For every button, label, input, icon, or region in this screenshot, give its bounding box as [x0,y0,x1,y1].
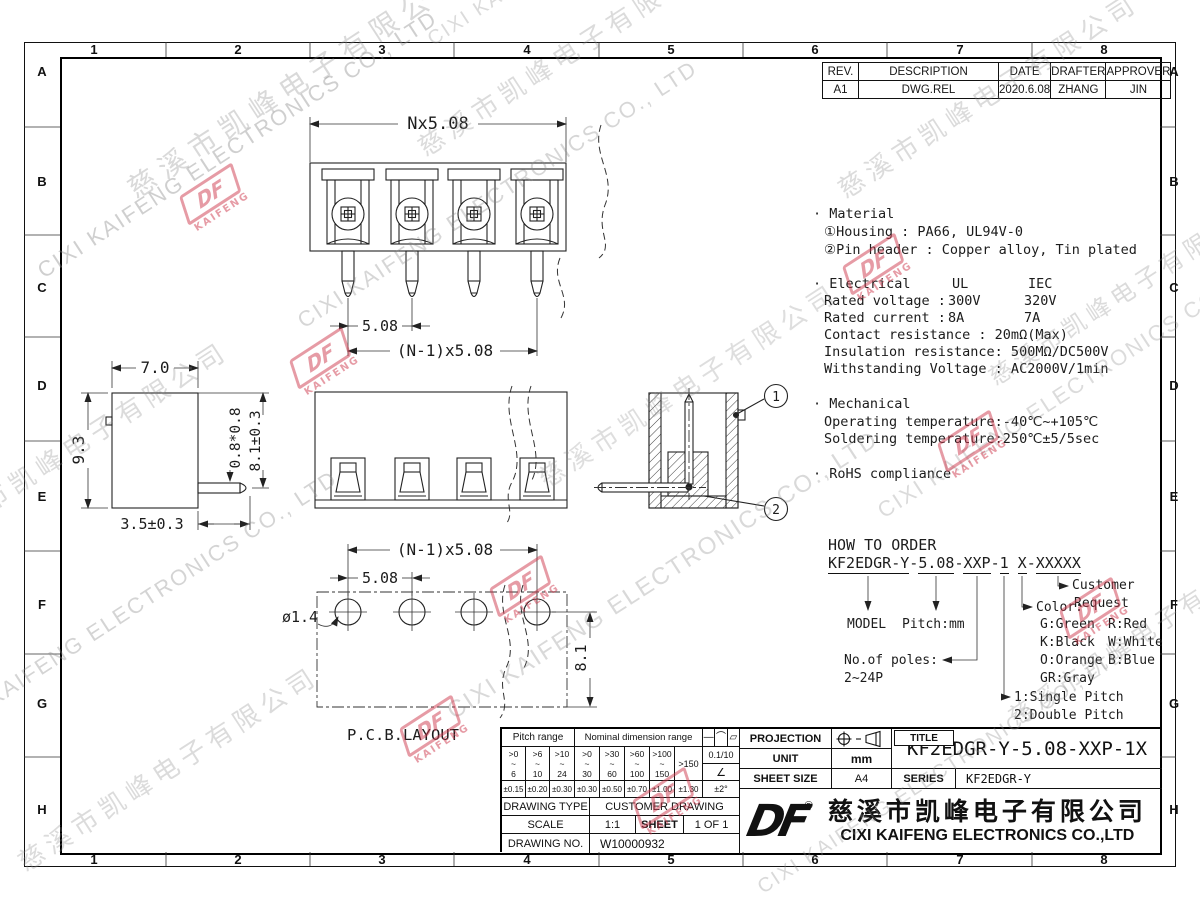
company-names: 慈溪市凯峰电子有限公司 CIXI KAIFENG ELECTRONICS CO.… [813,798,1162,846]
dim-width: 7.0 [141,358,170,377]
callout-1: 1 [772,390,780,405]
order-custom-code: XXXXX [1036,554,1081,574]
rev-value: JIN [1106,81,1171,99]
order-sep: - [909,554,918,572]
rated-current-ul: 8A [948,310,964,326]
tol-value: ±1.00 [650,781,675,798]
series-label: SERIES [892,769,956,789]
operating-temperature: Operating temperature:-40℃~+105℃ [824,414,1098,430]
dim-hole-dia: ø1.4 [282,608,318,626]
flatness-symbol: ▱ [727,729,739,746]
arc-symbol: ⌒ [714,729,726,746]
tol-range: >0~30 [575,747,600,781]
company-name-zh: 慈溪市凯峰电子有限公司 [813,798,1162,826]
order-color-option: B:Blue [1108,653,1155,668]
rev-header: APPROVER [1106,63,1171,81]
order-request-label: Request [1074,596,1129,611]
dim-pin-len: 8.1±0.3 [248,410,264,471]
electrical-col-ul: UL [952,276,968,292]
order-sep: - [991,554,1000,572]
top-view-dims [310,117,566,356]
material-line: ①Housing : PA66, UL94V-0 [824,224,1023,240]
sheet-size-value: A4 [832,769,892,789]
order-code: KF2EDGR-Y-5.08-XXP-1 X-XXXXX [828,554,1081,572]
company-name-en: CIXI KAIFENG ELECTRONICS CO.,LTD [813,826,1162,846]
front-view-break-line [506,386,536,524]
order-pitch-label: Pitch:mm [902,617,965,632]
sheet-size-label: SHEET SIZE [740,769,832,789]
pcb-break-line [500,585,528,718]
scale-value: 1:1 [590,816,636,834]
dim-row-dist: 8.1 [572,644,590,671]
order-color-option: GR:Gray [1040,671,1095,686]
tol-value: ±0.30 [575,781,600,798]
tol-value: ±0.70 [625,781,650,798]
tol-symbols: —⌒▱ [703,729,740,747]
order-color-code: X [1018,554,1027,574]
tol-range: >6~10 [526,747,550,781]
tol-range: >0~6 [502,747,526,781]
tol-value: ±0.15 [502,781,526,798]
df-logo: DF [743,800,809,844]
title-block: Pitch range Nominal dimension range —⌒▱ … [500,727,1160,852]
rated-voltage-label: Rated voltage : [824,293,946,309]
callout-2: 2 [772,503,780,518]
tol-nominal-header: Nominal dimension range [575,729,703,747]
rev-value: 2020.6.08 [999,81,1051,99]
pcb-dims [318,544,597,707]
rated-current-label: Rated current : [824,310,946,326]
drawing-no-value: W10000932 [590,834,740,854]
material-title: · Material [813,206,894,222]
series-value: KF2EDGR-Y [956,769,1162,789]
order-connectors [868,576,1068,697]
rev-value: DWG.REL [859,81,999,99]
side-view [106,393,246,508]
unit-label: UNIT [740,749,832,769]
drawing-type-value: CUSTOMER DRAWING [590,798,740,816]
projection-label: PROJECTION [740,729,832,749]
tol-range-over: >150 [675,747,703,781]
order-sep: - [1027,554,1036,572]
line-symbol: — [703,729,714,746]
order-poles-range: 2~24P [844,671,883,686]
drawing-type-label: DRAWING TYPE [502,798,590,816]
dim-pin-offset: 3.5±0.3 [120,515,183,533]
dim-pitch-n1: (N-1)x5.08 [397,341,493,360]
tol-range: >10~24 [550,747,575,781]
section-view [598,385,788,521]
sheet-label: SHEET [636,816,684,834]
revision-table: REV. DESCRIPTION DATE DRAFTER APPROVER A… [822,62,1171,99]
order-color-option: G:Green [1040,617,1095,632]
withstanding-voltage: Withstanding Voltage : AC2000V/1min [824,361,1108,377]
order-model-code: KF2EDGR-Y [828,554,909,574]
dim-pin-square: 0.8*0.8 [228,407,244,468]
drawing-no-label: DRAWING NO. [502,834,590,854]
tol-angle-value: ±2° [703,781,740,798]
tol-value: ±0.20 [526,781,550,798]
top-view [310,163,566,297]
order-pitch-code: 5.08 [918,554,954,574]
order-type-single: 1:Single Pitch [1014,690,1124,705]
tol-pitch-header: Pitch range [502,729,575,747]
rated-voltage-ul: 300V [948,293,981,309]
dim-height: 9.3 [69,436,88,465]
tol-value: ±1.30 [675,781,703,798]
order-type-code: 1 [1000,554,1009,574]
top-view-break-line [557,125,608,318]
projection-symbol [832,729,892,749]
rev-value: A1 [823,81,859,99]
rohs-compliance: · RoHS compliance [813,466,951,482]
order-color-option: K:Black [1040,635,1095,650]
title-label: TITLE [894,730,954,746]
order-model-label: MODEL [847,617,886,632]
drawing-sheet: Nx5.08 5.08 (N-1)x5.08 7.0 9.3 0.8*0.8 8… [0,0,1200,910]
tol-flatness: 0.1/10 [703,747,740,764]
dim-pitch-total: Nx5.08 [407,114,468,134]
company-block: DF® 慈溪市凯峰电子有限公司 CIXI KAIFENG ELECTRONICS… [740,789,1162,854]
rev-header: REV. [823,63,859,81]
insulation-resistance: Insulation resistance: 500MΩ/DC500V [824,344,1108,360]
company-logo: DF® [740,800,813,844]
mechanical-title: · Mechanical [813,396,911,412]
order-color-option: R:Red [1108,617,1147,632]
rated-current-iec: 7A [1024,310,1040,326]
rev-header: DATE [999,63,1051,81]
tol-range: >60~100 [625,747,650,781]
rev-header: DESCRIPTION [859,63,999,81]
tol-value: ±0.50 [600,781,625,798]
tol-range: >100~150 [650,747,675,781]
dim-pcb-pitch-n1: (N-1)x5.08 [397,540,493,559]
electrical-col-iec: IEC [1028,276,1052,292]
order-customer-label: Customer [1072,578,1135,593]
rated-voltage-iec: 320V [1024,293,1057,309]
order-space [1009,554,1018,572]
sheet-value: 1 OF 1 [684,816,740,834]
unit-value: mm [832,749,892,769]
order-poles-label: No.of poles: [844,653,938,668]
order-type-double: 2:Double Pitch [1014,708,1124,723]
soldering-temperature: Soldering temperature:250℃±5/5sec [824,431,1099,447]
rev-header: DRAFTER [1051,63,1106,81]
electrical-title: · Electrical [813,276,911,292]
angle-symbol: ∠ [703,764,740,781]
order-color-option: W:White [1108,635,1163,650]
tol-value: ±0.30 [550,781,575,798]
rev-value: ZHANG [1051,81,1106,99]
order-color-option: O:Orange [1040,653,1103,668]
dim-pcb-pitch: 5.08 [362,569,398,587]
front-view [315,392,567,508]
material-line: ②Pin header : Copper alloy, Tin plated [824,242,1137,258]
tol-range: >30~60 [600,747,625,781]
contact-resistance: Contact resistance : 20mΩ(Max) [824,327,1068,343]
dim-pitch: 5.08 [362,317,398,335]
order-poles-code: XXP [963,554,990,574]
scale-label: SCALE [502,816,590,834]
first-angle-projection-icon [835,730,889,748]
title-area: TITLE KF2EDGR-Y-5.08-XXP-1X [892,729,1162,769]
